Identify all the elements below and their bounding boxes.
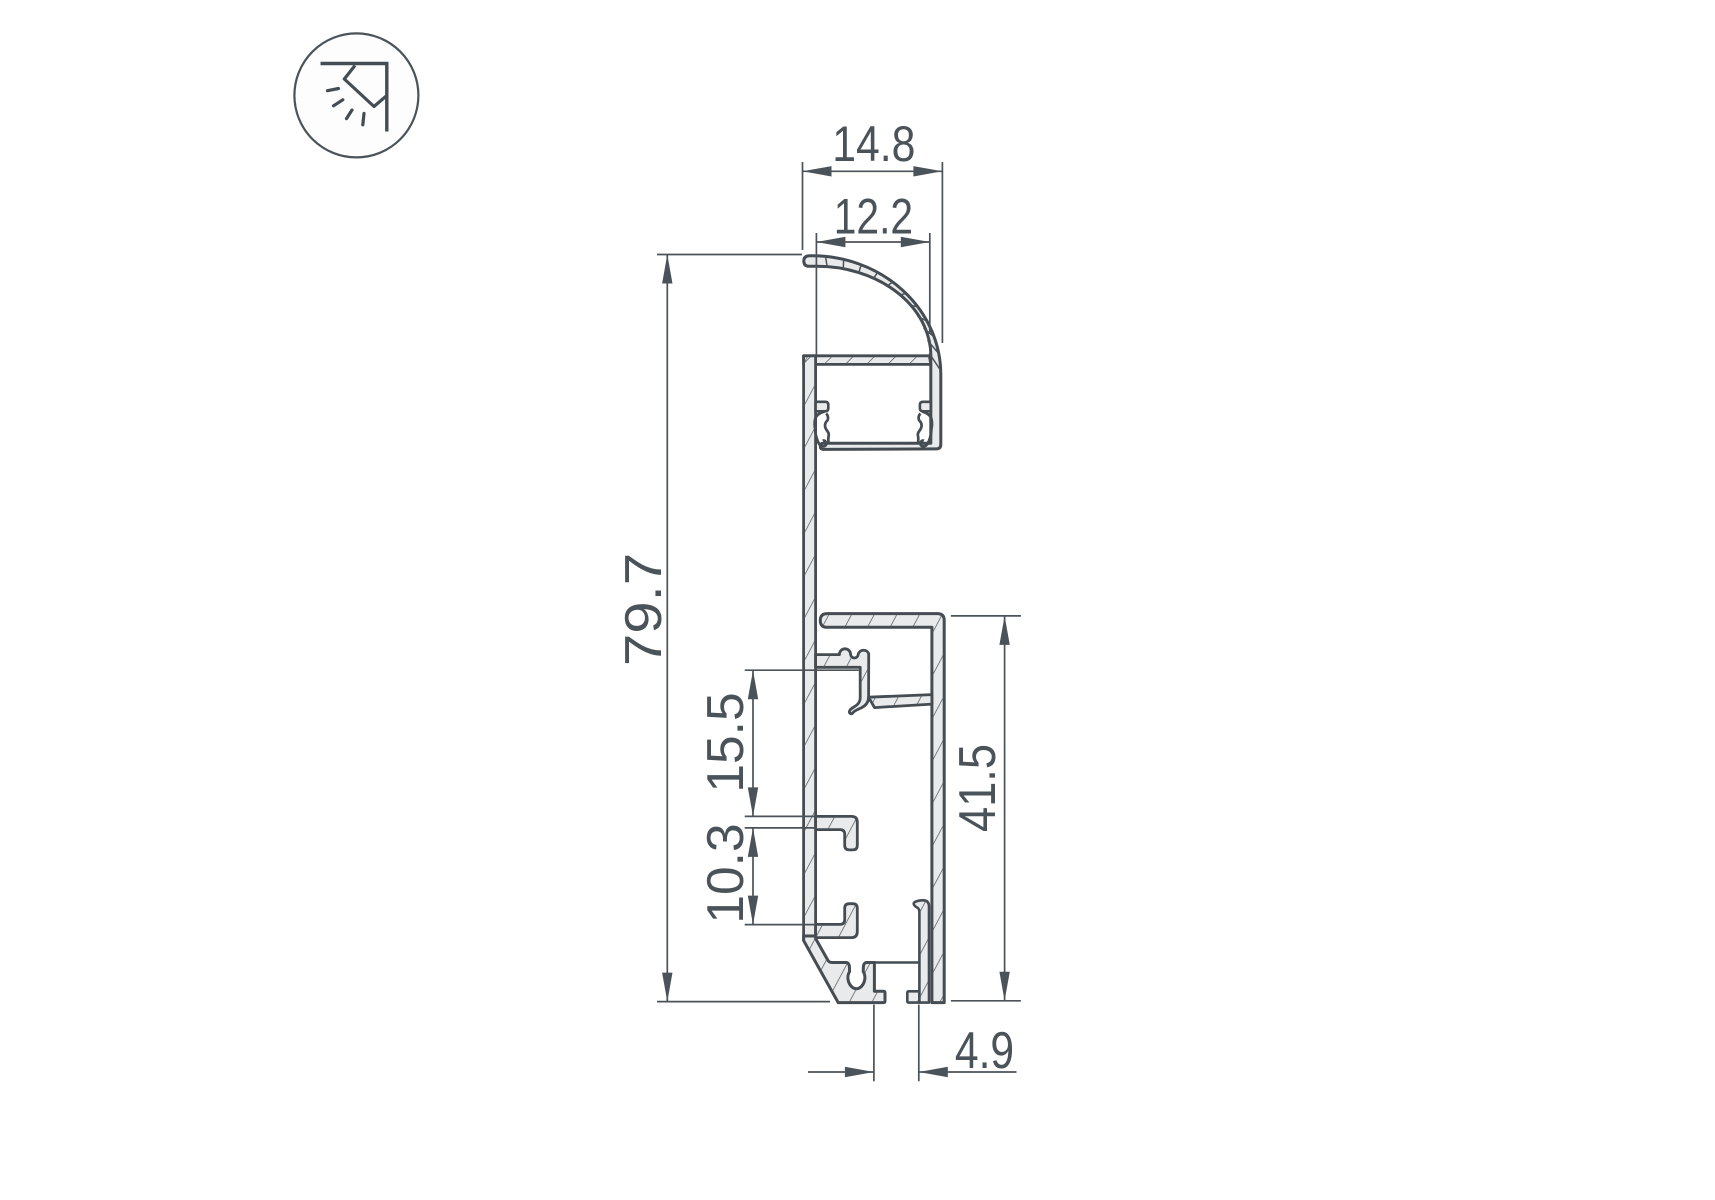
svg-text:4.9: 4.9 — [955, 1022, 1014, 1080]
svg-text:10.3: 10.3 — [696, 823, 754, 923]
svg-text:41.5: 41.5 — [949, 744, 1007, 832]
svg-text:12.2: 12.2 — [834, 189, 913, 245]
svg-text:79.7: 79.7 — [614, 553, 672, 666]
svg-text:15.5: 15.5 — [696, 692, 754, 792]
svg-text:14.8: 14.8 — [832, 116, 915, 172]
